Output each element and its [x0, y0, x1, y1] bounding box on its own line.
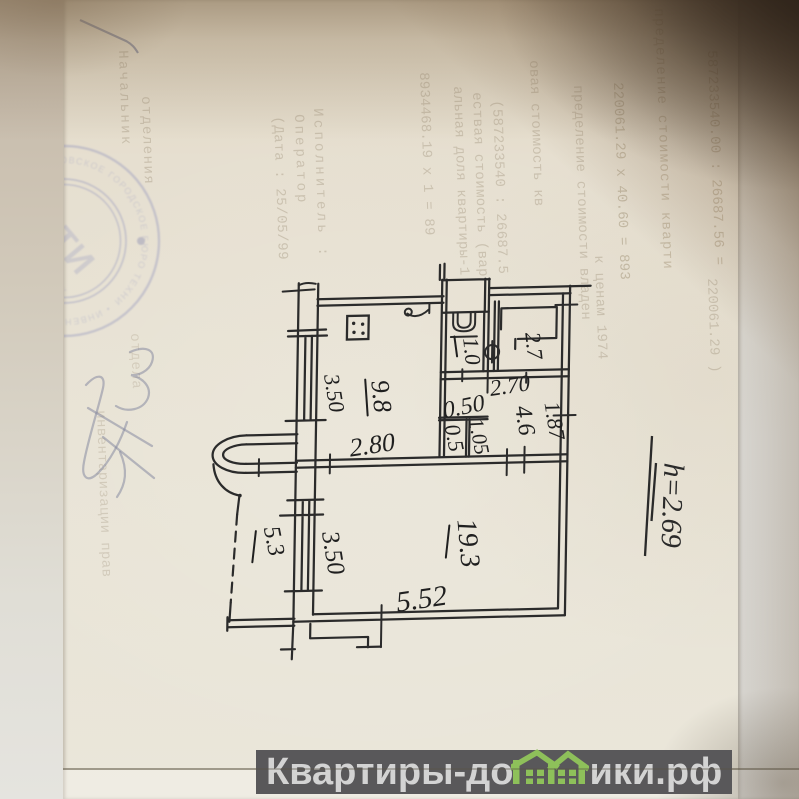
svg-text:9.8: 9.8	[365, 378, 397, 414]
svg-text:БТИ: БТИ	[25, 200, 103, 283]
svg-text:19.3: 19.3	[450, 517, 485, 570]
svg-text:СВЕРДЛОВСКОЕ ГОРОДСКОЕ БЮРО ТЕ: СВЕРДЛОВСКОЕ ГОРОДСКОЕ БЮРО ТЕХНИЧ	[8, 15, 310, 308]
svg-text:г.СВЕРДЛОВСК: г.СВЕРДЛОВСК	[9, 228, 69, 297]
svg-text:3.50: 3.50	[316, 528, 350, 578]
svg-text:1.87: 1.87	[540, 399, 571, 443]
svg-text:h=2.69: h=2.69	[655, 462, 690, 548]
svg-text:2.7: 2.7	[520, 330, 548, 362]
svg-text:3.50: 3.50	[319, 371, 350, 415]
svg-text:4.6: 4.6	[509, 403, 539, 438]
svg-text:2.80: 2.80	[348, 427, 396, 462]
svg-text:5.3: 5.3	[258, 524, 289, 559]
svg-text:2.70: 2.70	[489, 370, 532, 401]
svg-text:1.0: 1.0	[458, 336, 486, 367]
svg-text:5.52: 5.52	[395, 580, 449, 619]
svg-text:• ИНВЕНТАРИЗАЦИИ • ОБЛАСТИ •: • ИНВЕНТАРИЗАЦИИ • ОБЛАСТИ •	[0, 193, 113, 362]
svg-text:0.5: 0.5	[440, 422, 470, 455]
